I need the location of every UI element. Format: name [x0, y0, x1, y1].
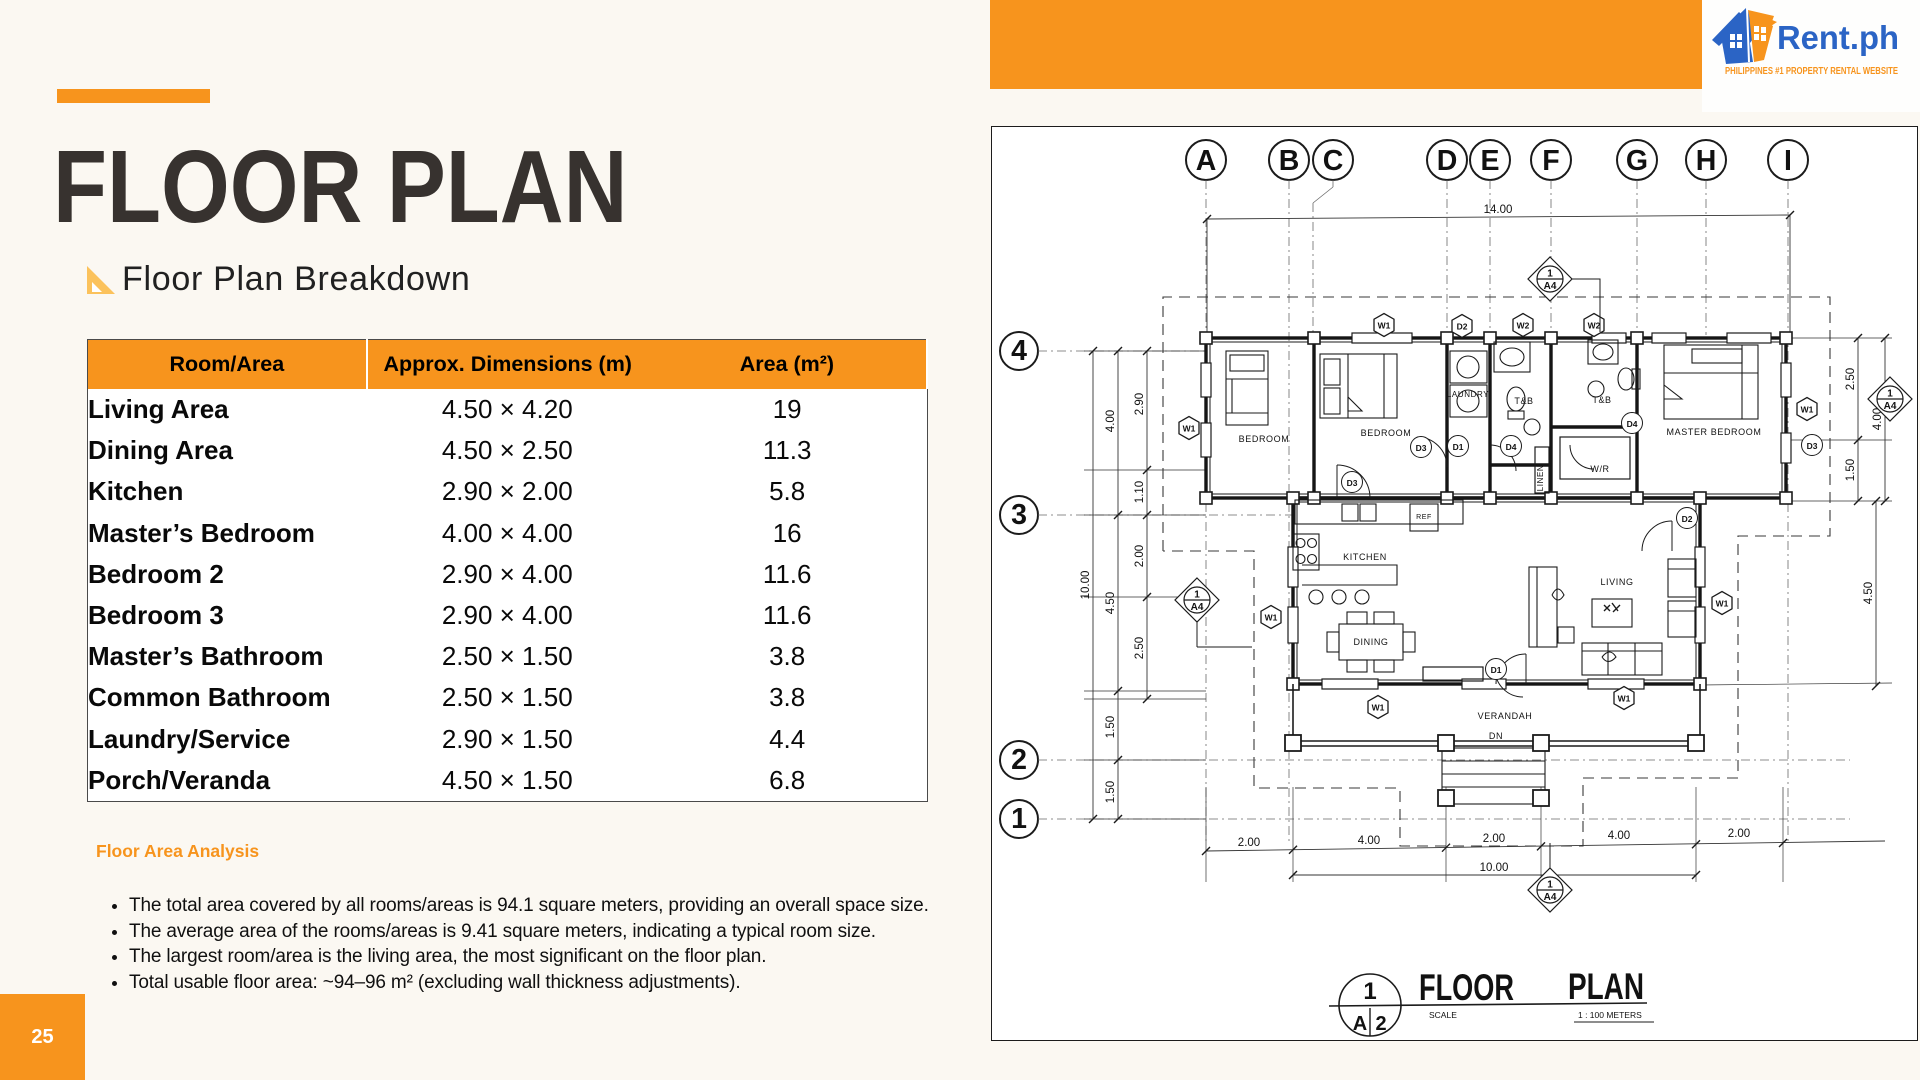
svg-text:LIVING: LIVING	[1600, 577, 1633, 587]
svg-text:VERANDAH: VERANDAH	[1478, 711, 1533, 721]
svg-text:C: C	[1323, 145, 1344, 177]
svg-text:2.00: 2.00	[1238, 837, 1260, 849]
svg-text:W1: W1	[1265, 613, 1278, 623]
svg-text:2: 2	[1375, 1013, 1386, 1035]
svg-text:D1: D1	[1453, 442, 1464, 452]
svg-text:A: A	[1353, 1013, 1367, 1035]
svg-text:T&B: T&B	[1514, 396, 1533, 406]
svg-text:2.00: 2.00	[1728, 828, 1750, 840]
svg-text:D: D	[1437, 145, 1458, 177]
svg-text:W1: W1	[1801, 405, 1814, 415]
svg-text:D2: D2	[1457, 322, 1468, 332]
svg-text:D1: D1	[1491, 665, 1502, 675]
svg-text:10.00: 10.00	[1080, 571, 1092, 600]
svg-text:1 : 100 METERS: 1 : 100 METERS	[1578, 1010, 1642, 1020]
svg-text:4.00: 4.00	[1608, 830, 1630, 842]
svg-text:W/R: W/R	[1590, 464, 1609, 474]
svg-text:W1: W1	[1618, 694, 1631, 704]
svg-text:2.00: 2.00	[1134, 545, 1146, 567]
svg-text:BEDROOM: BEDROOM	[1361, 428, 1412, 438]
svg-text:4.00: 4.00	[1358, 835, 1380, 847]
svg-text:G: G	[1626, 145, 1648, 177]
svg-text:DINING: DINING	[1353, 637, 1388, 647]
svg-text:D4: D4	[1627, 419, 1638, 429]
svg-text:PHILIPPINES #1 PROPERTY RENTAL: PHILIPPINES #1 PROPERTY RENTAL WEBSITE	[1725, 66, 1898, 77]
svg-text:E: E	[1480, 145, 1499, 177]
svg-text:1: 1	[1547, 880, 1553, 891]
svg-text:3: 3	[1011, 499, 1027, 531]
svg-text:KITCHEN: KITCHEN	[1343, 552, 1387, 562]
svg-text:A4: A4	[1191, 602, 1204, 613]
svg-text:A: A	[1196, 145, 1217, 177]
svg-text:14.00: 14.00	[1484, 204, 1513, 216]
svg-text:A4: A4	[1544, 892, 1557, 903]
svg-text:1.50: 1.50	[1845, 459, 1857, 481]
svg-text:2.90: 2.90	[1134, 393, 1146, 415]
svg-text:A4: A4	[1544, 281, 1557, 292]
svg-text:LAUNDRY: LAUNDRY	[1447, 390, 1489, 399]
svg-text:DN: DN	[1489, 731, 1503, 741]
svg-text:LINEN: LINEN	[1536, 465, 1545, 492]
svg-text:1.10: 1.10	[1134, 481, 1146, 503]
svg-text:FLOOR: FLOOR	[1419, 967, 1514, 1008]
svg-text:BEDROOM: BEDROOM	[1239, 434, 1290, 444]
svg-text:W1: W1	[1372, 703, 1385, 713]
svg-text:SCALE: SCALE	[1429, 1010, 1457, 1020]
svg-text:MASTER BEDROOM: MASTER BEDROOM	[1667, 427, 1762, 437]
svg-text:2.50: 2.50	[1134, 637, 1146, 659]
svg-text:4: 4	[1011, 335, 1027, 367]
svg-text:1.50: 1.50	[1105, 781, 1117, 803]
svg-text:4.50: 4.50	[1863, 582, 1875, 604]
svg-text:F: F	[1542, 145, 1559, 177]
svg-text:W2: W2	[1517, 321, 1530, 331]
svg-text:A4: A4	[1884, 401, 1897, 412]
svg-text:2.50: 2.50	[1845, 368, 1857, 390]
svg-text:1.50: 1.50	[1105, 716, 1117, 738]
svg-text:2.00: 2.00	[1483, 833, 1505, 845]
svg-text:D2: D2	[1682, 514, 1693, 524]
svg-text:W2: W2	[1588, 321, 1601, 331]
svg-text:1: 1	[1547, 269, 1553, 280]
svg-text:4.50: 4.50	[1105, 592, 1117, 614]
svg-text:4.00: 4.00	[1105, 410, 1117, 432]
svg-text:B: B	[1279, 145, 1300, 177]
svg-text:T&B: T&B	[1592, 395, 1611, 405]
svg-text:PLAN: PLAN	[1568, 966, 1644, 1007]
svg-text:1: 1	[1194, 590, 1200, 601]
svg-text:2: 2	[1011, 744, 1027, 776]
svg-text:W1: W1	[1183, 424, 1196, 434]
svg-text:D3: D3	[1416, 443, 1427, 453]
svg-text:W1: W1	[1378, 321, 1391, 331]
svg-text:1: 1	[1887, 389, 1893, 400]
svg-text:W1: W1	[1716, 599, 1729, 609]
svg-text:I: I	[1784, 145, 1792, 177]
svg-text:H: H	[1696, 145, 1717, 177]
svg-text:D4: D4	[1506, 442, 1517, 452]
svg-text:D3: D3	[1347, 478, 1358, 488]
svg-text:1: 1	[1363, 978, 1376, 1005]
svg-text:10.00: 10.00	[1480, 862, 1509, 874]
svg-text:REF: REF	[1416, 514, 1432, 521]
svg-text:Rent.ph: Rent.ph	[1777, 19, 1899, 56]
svg-text:D3: D3	[1807, 441, 1818, 451]
svg-text:1: 1	[1011, 803, 1027, 835]
